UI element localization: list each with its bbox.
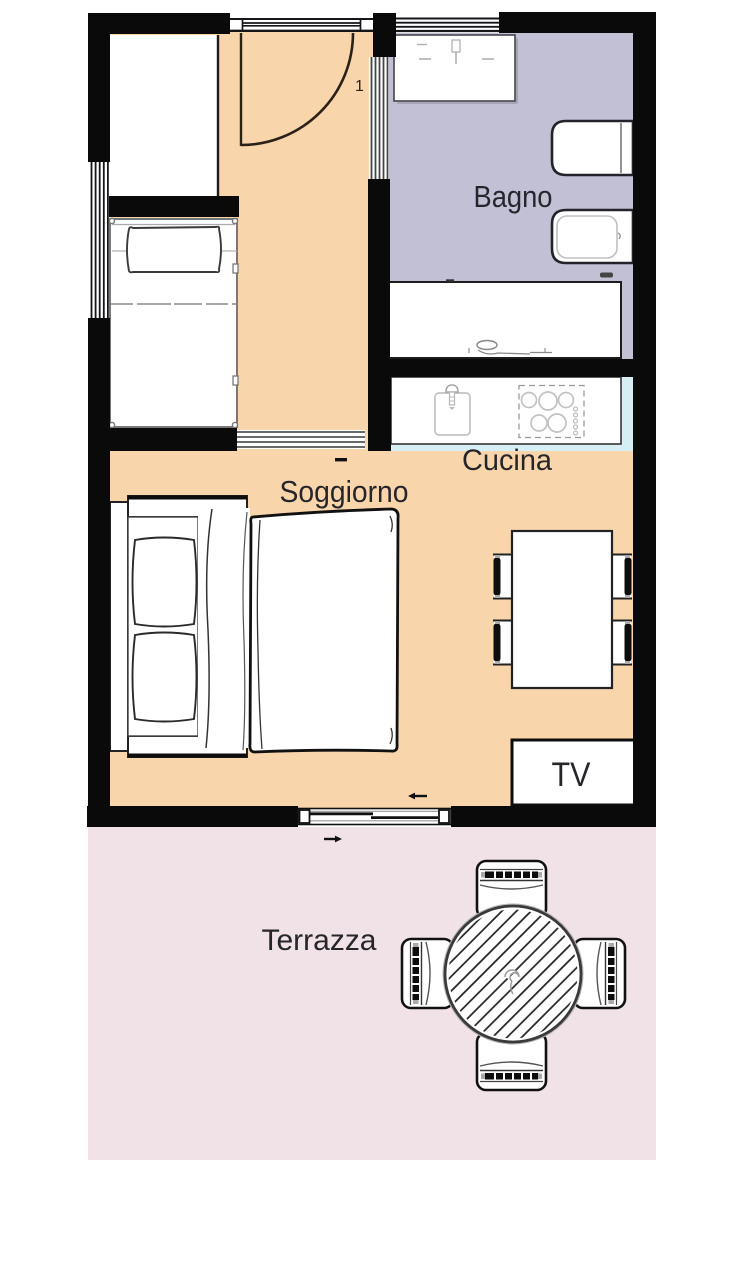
svg-text:1: 1 <box>355 78 364 95</box>
svg-text:Bagno: Bagno <box>474 179 553 214</box>
svg-text:Terrazza: Terrazza <box>262 924 377 957</box>
svg-text:Cucina: Cucina <box>462 444 552 477</box>
svg-text:TV: TV <box>552 756 591 794</box>
svg-text:Soggiorno: Soggiorno <box>280 474 409 509</box>
